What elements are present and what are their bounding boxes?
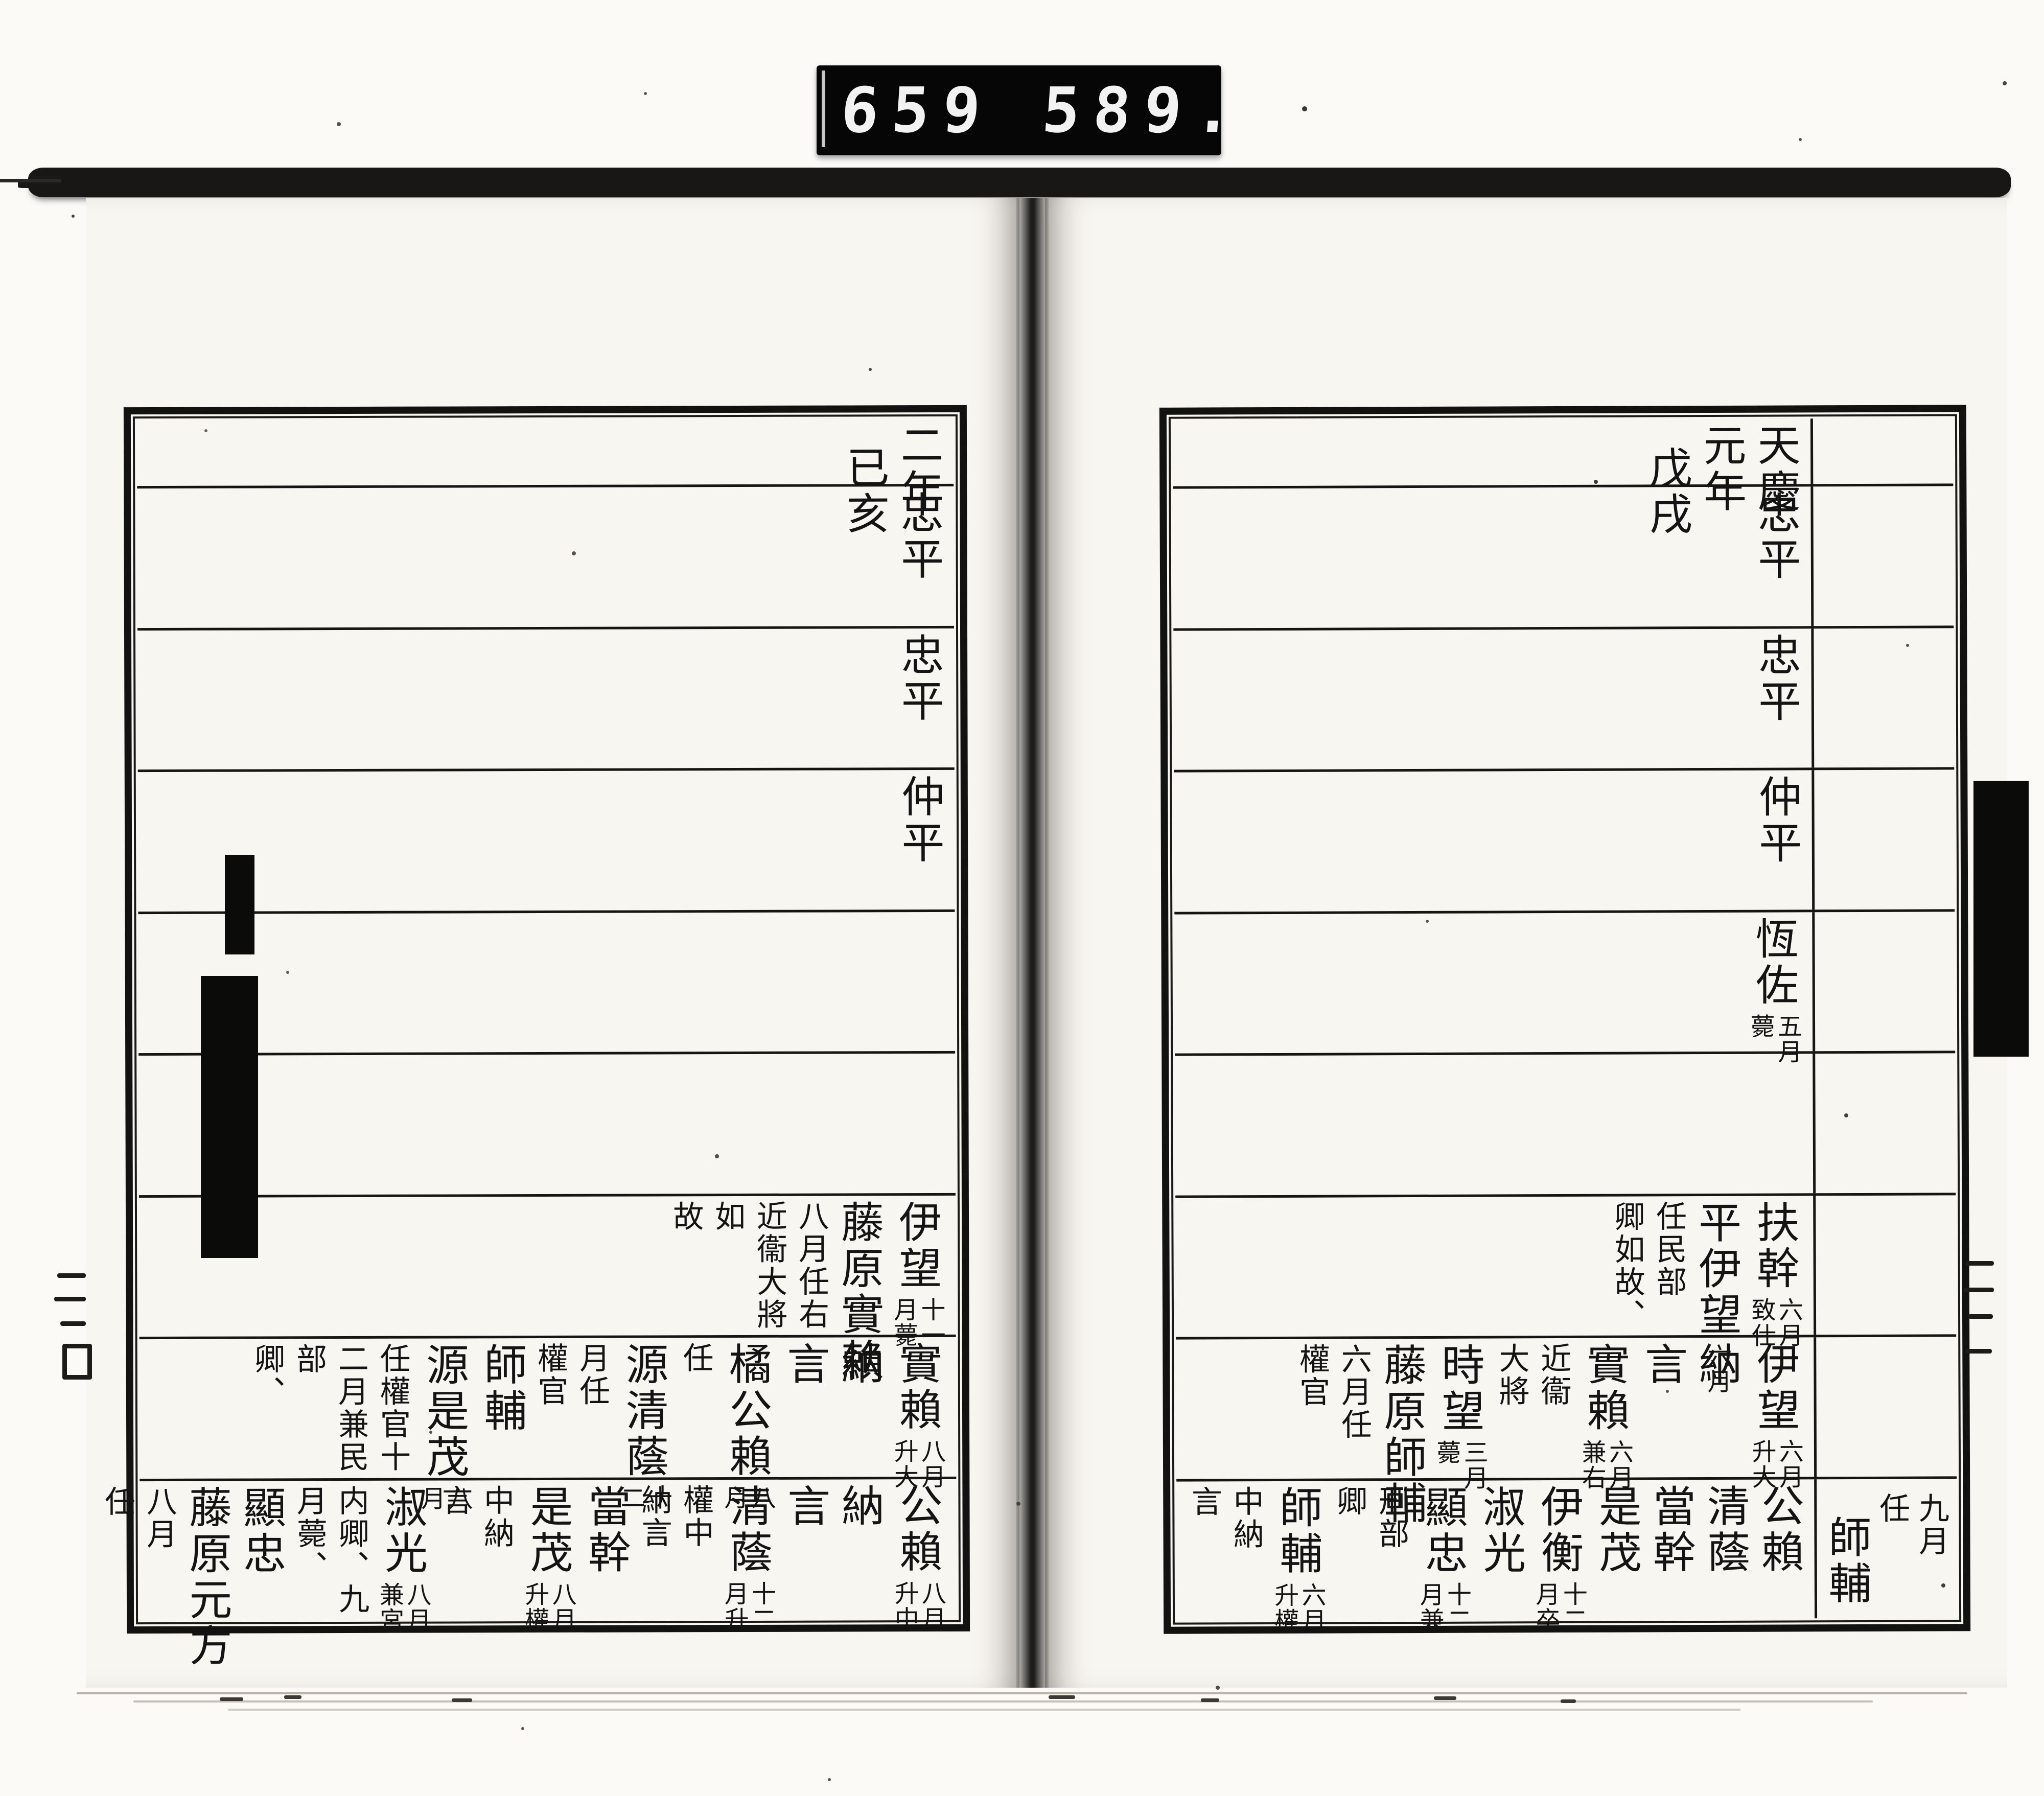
name-column: 淑光: [1478, 1484, 1524, 1576]
small-annotation-line: 十二: [1444, 1581, 1470, 1632]
vertical-text: 納言: [637, 1484, 670, 1549]
edge-text-fragment: [1965, 1349, 1992, 1354]
name-column: 當幹: [583, 1484, 629, 1576]
office-row-cell: [138, 912, 955, 1053]
name-column: 師輔六月升權: [1271, 1485, 1325, 1633]
vertical-text: 忠平: [1753, 491, 1799, 582]
annotation-column: 月薨、: [292, 1485, 326, 1583]
annotation-column: 權中: [679, 1484, 712, 1549]
vertical-text: 月任: [575, 1342, 609, 1408]
name-column: 忠平: [1753, 491, 1799, 582]
vertical-text: 忠平: [896, 491, 942, 582]
annotation-column: 如: [711, 1200, 744, 1232]
scan-dash: [284, 1695, 301, 1699]
office-row-cell: 公賴清蔭當幹是茂伊衡十二月卒淑光顯忠十二月兼刑部卿師輔六月升權中納言: [1176, 1479, 1815, 1621]
vertical-text: 淑光: [1478, 1484, 1524, 1576]
vertical-text: 近衞: [1537, 1342, 1570, 1408]
small-annotation-line: 八月: [404, 1581, 430, 1632]
spine-tab-right-large: [1973, 781, 2029, 1057]
vertical-text: 任: [1875, 1492, 1909, 1525]
vertical-text: 師輔: [1824, 1514, 1870, 1606]
small-annotation-line: 十二: [749, 1580, 775, 1631]
name-column: 忠平: [1753, 633, 1799, 725]
table-row: 伊望六月升大納言實賴六月兼右近衞大將時望三月薨藤原師輔六月任權官: [1176, 1337, 1957, 1481]
small-annotation-line: 六月: [1298, 1582, 1325, 1633]
vertical-text: 仲平: [897, 774, 943, 866]
small-annotation-line: 八月: [549, 1581, 575, 1632]
name-column: 納: [1694, 1342, 1739, 1388]
annotation-column: 刑部: [1375, 1485, 1408, 1550]
table-row: 忠平: [1173, 628, 1954, 773]
name-column: 實賴六月兼右: [1578, 1342, 1632, 1490]
office-row-cell: 實賴八月升大納言橘公賴八月任源清蔭十二月任權官師輔源是茂八月任權官十二月兼民部卿…: [140, 1337, 957, 1479]
table-row: 公賴清蔭當幹是茂伊衡十二月卒淑光顯忠十二月兼刑部卿師輔六月升權中納言九月任師輔: [1176, 1479, 1957, 1621]
small-annotation-line: 升中: [891, 1580, 917, 1631]
office-row-cell: 仲平: [138, 770, 955, 912]
office-row-cell: 伊望十一月薨藤原實賴八月任右近衞大將如故: [139, 1195, 956, 1337]
name-column: 當幹: [1648, 1484, 1694, 1576]
name-column: 仲平: [1754, 774, 1800, 866]
name-column: 伊衡十二月卒: [1532, 1484, 1586, 1632]
annotation-column: 八月任右: [794, 1200, 827, 1331]
annotation-column: 言: [1187, 1485, 1220, 1518]
name-column: 伊望六月升大: [1748, 1341, 1802, 1489]
name-column: 忠平: [896, 491, 942, 582]
vertical-text: 權中: [679, 1484, 712, 1549]
vertical-text: 仲平: [1754, 774, 1800, 866]
annotation-column: 大將: [1495, 1342, 1528, 1408]
edge-text-fragment: [60, 1321, 86, 1326]
vertical-text: 當幹: [583, 1484, 629, 1576]
vertical-text: 卿如故、: [1610, 1200, 1644, 1331]
vertical-text: 二月兼民: [334, 1343, 367, 1474]
table-row: 扶幹六月致仕平伊望六月任民部卿如故、: [1175, 1195, 1956, 1340]
scan-dash: [1049, 1695, 1075, 1699]
office-row-cell: 忠平: [1173, 486, 1811, 628]
vertical-text: 部: [292, 1343, 326, 1375]
name-column: 實賴八月升大: [891, 1341, 944, 1489]
annotation-column: 中納: [1229, 1485, 1262, 1551]
vertical-text: 權官: [533, 1342, 567, 1408]
previous-year-cell: [1812, 912, 1955, 1051]
table-row: 伊望十一月薨藤原實賴八月任右近衞大將如故: [139, 1195, 956, 1339]
vertical-text: 納: [1694, 1342, 1739, 1388]
vertical-text: 任權官十: [376, 1343, 409, 1474]
annotation-column: 卿: [1333, 1485, 1366, 1518]
page-bottom-edges: [77, 1686, 1967, 1722]
office-row-cell: 扶幹六月致仕平伊望六月任民部卿如故、: [1175, 1196, 1814, 1337]
small-annotation: 八月升中: [891, 1580, 944, 1631]
table-row: 公賴八月升中納言清蔭十二月升權中納言當幹是茂八月升權中納言淑光八月兼宮内卿、九月…: [140, 1479, 957, 1620]
vertical-text: 刑部: [1375, 1485, 1408, 1550]
vertical-text: 源清蔭: [621, 1342, 667, 1480]
small-annotation: 八月兼宮: [376, 1581, 429, 1632]
vertical-text: 八月任右: [794, 1200, 827, 1331]
name-column: 言: [1640, 1342, 1685, 1388]
vertical-text: 如: [711, 1200, 744, 1232]
scan-dash: [1561, 1699, 1576, 1703]
annotation-column: 近衞: [1537, 1342, 1570, 1408]
year-header-row: 天慶元年戊戌: [1173, 418, 1953, 488]
vertical-text: 公賴: [895, 1483, 941, 1575]
table-row: 仲平: [138, 770, 955, 914]
name-column: 師輔: [1824, 1514, 1870, 1606]
vertical-text: 橘公賴: [724, 1342, 770, 1480]
office-row-cell: 仲平: [1174, 770, 1812, 912]
vertical-text: 任: [101, 1485, 134, 1518]
previous-year-cell: [1810, 418, 1953, 484]
table-row: [138, 1054, 956, 1198]
annotation-column: 八月: [143, 1485, 176, 1550]
book-spread: 二年已亥忠平忠平仲平伊望十一月薨藤原實賴八月任右近衞大將如故實賴八月升大納言橘公…: [86, 198, 2007, 1688]
table-row: 仲平: [1174, 769, 1955, 914]
name-column: 顯忠十二月兼: [1416, 1484, 1470, 1632]
book-gutter: [1016, 198, 1049, 1688]
name-column: 淑光八月兼宮: [376, 1484, 430, 1632]
name-column: 時望三月薨: [1433, 1343, 1486, 1491]
vertical-text: 故: [669, 1200, 702, 1233]
spine-tab-left-small: [225, 855, 254, 954]
small-annotation: 十二月卒: [1532, 1581, 1586, 1632]
annotation-column: 權官: [533, 1342, 567, 1408]
previous-year-cell: [1814, 1337, 1957, 1476]
vertical-text: 任民部: [1652, 1200, 1685, 1298]
vertical-text: 八月: [143, 1485, 176, 1550]
vertical-text: 伊望: [894, 1199, 940, 1291]
annotation-column: 任權官十: [376, 1343, 409, 1474]
scan-dash: [452, 1698, 472, 1702]
small-annotation-line: 升權: [522, 1581, 548, 1632]
counter-right-digits: 589.: [1040, 74, 1248, 147]
vertical-text: 納: [837, 1483, 882, 1529]
office-row-cell: 伊望六月升大納言實賴六月兼右近衞大將時望三月薨藤原師輔六月任權官: [1176, 1337, 1814, 1479]
name-column: 言: [783, 1483, 828, 1529]
vertical-text: 淑光: [380, 1484, 426, 1576]
annotation-column: 任: [1875, 1492, 1909, 1525]
vertical-text: 内卿、九: [334, 1484, 367, 1615]
vertical-text: 伊望: [1752, 1341, 1798, 1433]
vertical-text: 清蔭: [1702, 1483, 1748, 1575]
annotation-column: 納言: [637, 1484, 670, 1549]
annotation-column: 故: [669, 1200, 702, 1233]
name-column: 言: [782, 1342, 828, 1388]
small-annotation: 六月升權: [1271, 1582, 1325, 1633]
small-annotation-line: 月兼: [1416, 1581, 1443, 1632]
annotation-column: 任: [101, 1485, 134, 1518]
previous-year-cell: [1810, 486, 1954, 625]
small-annotation-line: 月卒: [1532, 1581, 1559, 1632]
table-row: 實賴八月升大納言橘公賴八月任源清蔭十二月任權官師輔源是茂八月任權官十二月兼民部卿…: [140, 1337, 957, 1481]
annotation-column: 中納: [480, 1484, 513, 1550]
vertical-text: 源是茂: [421, 1342, 467, 1480]
vertical-text: 言: [1640, 1342, 1685, 1388]
vertical-text: 當幹: [1648, 1484, 1694, 1576]
name-column: 是茂: [1594, 1484, 1640, 1576]
name-column: 恆佐五月薨: [1747, 916, 1801, 1064]
vertical-text: 平伊望: [1693, 1200, 1739, 1338]
office-row-cell: 忠平: [1173, 628, 1811, 770]
vertical-text: 忠平: [896, 632, 942, 724]
small-annotation: 十二月升: [721, 1580, 774, 1631]
previous-year-cell: [1811, 628, 1954, 767]
vertical-text: 清蔭: [725, 1483, 771, 1575]
office-row-cell: 忠平: [137, 628, 955, 769]
small-annotation-line: 升權: [1271, 1582, 1297, 1633]
annotation-column: 内卿、九: [334, 1484, 367, 1615]
annotation-column: 近衞大將: [753, 1200, 786, 1331]
vertical-text: 大將: [1495, 1342, 1528, 1408]
name-column: 伊望十一月薨: [890, 1199, 944, 1347]
annotation-column: 任民部: [1652, 1200, 1685, 1298]
edge-text-fragment: [57, 1273, 86, 1278]
vertical-text: 中納: [480, 1484, 513, 1550]
vertical-text: 實賴: [1582, 1342, 1628, 1434]
small-annotation-line: 八月: [918, 1580, 944, 1631]
vertical-text: 時望: [1437, 1343, 1483, 1435]
name-column: 公賴: [1756, 1483, 1802, 1575]
vertical-text: 是茂: [1594, 1484, 1640, 1576]
previous-year-cell: 九月任師輔: [1814, 1479, 1957, 1618]
vertical-text: 權官: [1295, 1343, 1329, 1409]
scan-dash: [1434, 1696, 1456, 1700]
vertical-text: 月薨、: [292, 1485, 326, 1583]
vertical-text: 言: [438, 1484, 471, 1517]
vertical-text: 實賴: [894, 1341, 940, 1433]
name-column: 納: [837, 1483, 882, 1529]
frame-counter: 659 589.: [817, 65, 1221, 155]
vertical-text: 卿: [1333, 1485, 1366, 1518]
edge-text-fragment: [62, 1344, 92, 1380]
vertical-text: 是茂: [525, 1484, 571, 1576]
name-column: 清蔭十二月升: [721, 1483, 775, 1631]
vertical-text: 六月任: [1337, 1343, 1370, 1441]
small-annotation-line: 十二: [1560, 1581, 1586, 1632]
table-row: [138, 912, 955, 1056]
table-row: 忠平: [137, 486, 954, 631]
name-column: 扶幹六月致仕: [1748, 1200, 1801, 1348]
previous-year-cell: [1813, 1053, 1956, 1193]
vertical-text: 中納: [1229, 1485, 1262, 1551]
name-column: 納: [837, 1341, 882, 1387]
name-column: 公賴八月升中: [891, 1483, 945, 1631]
vertical-text: 言: [1187, 1485, 1220, 1518]
annotation-column: 部: [292, 1343, 326, 1375]
vertical-text: 卿、: [250, 1343, 284, 1408]
office-row-cell: 公賴八月升中納言清蔭十二月升權中納言當幹是茂八月升權中納言淑光八月兼宮内卿、九月…: [140, 1479, 957, 1620]
scan-speckles: [72, 215, 75, 218]
scan-dash: [1201, 1698, 1219, 1702]
vertical-text: 顯忠: [1420, 1484, 1466, 1576]
vertical-text: 任: [679, 1342, 712, 1374]
counter-glare: [822, 71, 825, 147]
annotation-column: 九月: [1914, 1492, 1947, 1557]
edge-text-fragment: [1968, 1314, 1993, 1319]
book-top-edge: [28, 168, 2011, 197]
vertical-text: 言: [783, 1483, 828, 1529]
office-row-cell: 忠平: [137, 486, 954, 628]
edge-text-fragment: [1966, 1261, 1994, 1266]
vertical-text: 顯忠: [238, 1485, 284, 1577]
vertical-text: 公賴: [1756, 1483, 1802, 1575]
annotation-column: 六月任: [1337, 1343, 1370, 1441]
small-annotation-line: 兼宮: [376, 1581, 402, 1632]
year-header-cell: 二年已亥: [137, 418, 954, 486]
office-row-cell: [1175, 1054, 1813, 1195]
book-top-hairline: [0, 179, 61, 182]
annotation-column: 任: [679, 1342, 712, 1374]
name-column: 清蔭: [1702, 1483, 1748, 1575]
vertical-text: 師輔: [479, 1342, 525, 1434]
table-row: 忠平: [1173, 486, 1954, 631]
vertical-text: 扶幹: [1752, 1200, 1798, 1292]
year-header-row: 二年已亥: [137, 418, 954, 488]
vertical-text: 九月: [1914, 1492, 1947, 1557]
vertical-text: 納: [837, 1341, 882, 1387]
name-column: 忠平: [896, 632, 942, 724]
right-page: 天慶元年戊戌忠平忠平仲平恆佐五月薨扶幹六月致仕平伊望六月任民部卿如故、伊望六月升…: [1045, 198, 2007, 1688]
counter-left-digits: 659: [839, 74, 996, 147]
table-row: 忠平: [137, 628, 955, 772]
annotation-column: 言: [438, 1484, 471, 1517]
annotation-column: 卿如故、: [1610, 1200, 1644, 1331]
annotation-column: 月任: [575, 1342, 609, 1408]
vertical-text: 近衞大將: [753, 1200, 786, 1331]
vertical-text: 忠平: [1753, 633, 1799, 725]
name-column: 顯忠: [238, 1485, 284, 1577]
table-row: [1175, 1053, 1956, 1198]
vertical-text: 伊衡: [1536, 1484, 1582, 1576]
edge-text-fragment: [1963, 1288, 1994, 1292]
vertical-text: 恆佐: [1751, 916, 1797, 1008]
table-row: 恆佐五月薨: [1174, 912, 1955, 1056]
annotation-column: 卿、: [250, 1343, 284, 1408]
name-column: 師輔: [479, 1342, 525, 1434]
previous-year-cell: [1813, 1195, 1956, 1335]
scan-dash: [220, 1697, 243, 1701]
annotation-column: 權官: [1295, 1343, 1329, 1409]
previous-year-cell: [1811, 769, 1955, 909]
name-column: 是茂八月升權: [521, 1484, 575, 1632]
small-annotation: 十二月兼: [1416, 1581, 1470, 1632]
right-page-table: 天慶元年戊戌忠平忠平仲平恆佐五月薨扶幹六月致仕平伊望六月任民部卿如故、伊望六月升…: [1159, 405, 1970, 1634]
small-annotation: 八月升權: [522, 1581, 575, 1632]
vertical-text: 師輔: [1274, 1485, 1320, 1577]
name-column: 仲平: [897, 774, 943, 866]
office-row-cell: 恆佐五月薨: [1174, 912, 1813, 1054]
edge-text-fragment: [54, 1297, 86, 1301]
office-row-cell: [138, 1054, 956, 1195]
vertical-text: 藤原元方: [184, 1485, 230, 1669]
spine-tab-left-large: [201, 976, 258, 1258]
vertical-text: 言: [782, 1342, 828, 1388]
small-annotation-line: 月升: [721, 1580, 747, 1631]
annotation-column: 二月兼民: [334, 1343, 367, 1474]
name-column: 藤原元方: [184, 1485, 230, 1669]
year-header-cell: 天慶元年戊戌: [1173, 418, 1810, 486]
